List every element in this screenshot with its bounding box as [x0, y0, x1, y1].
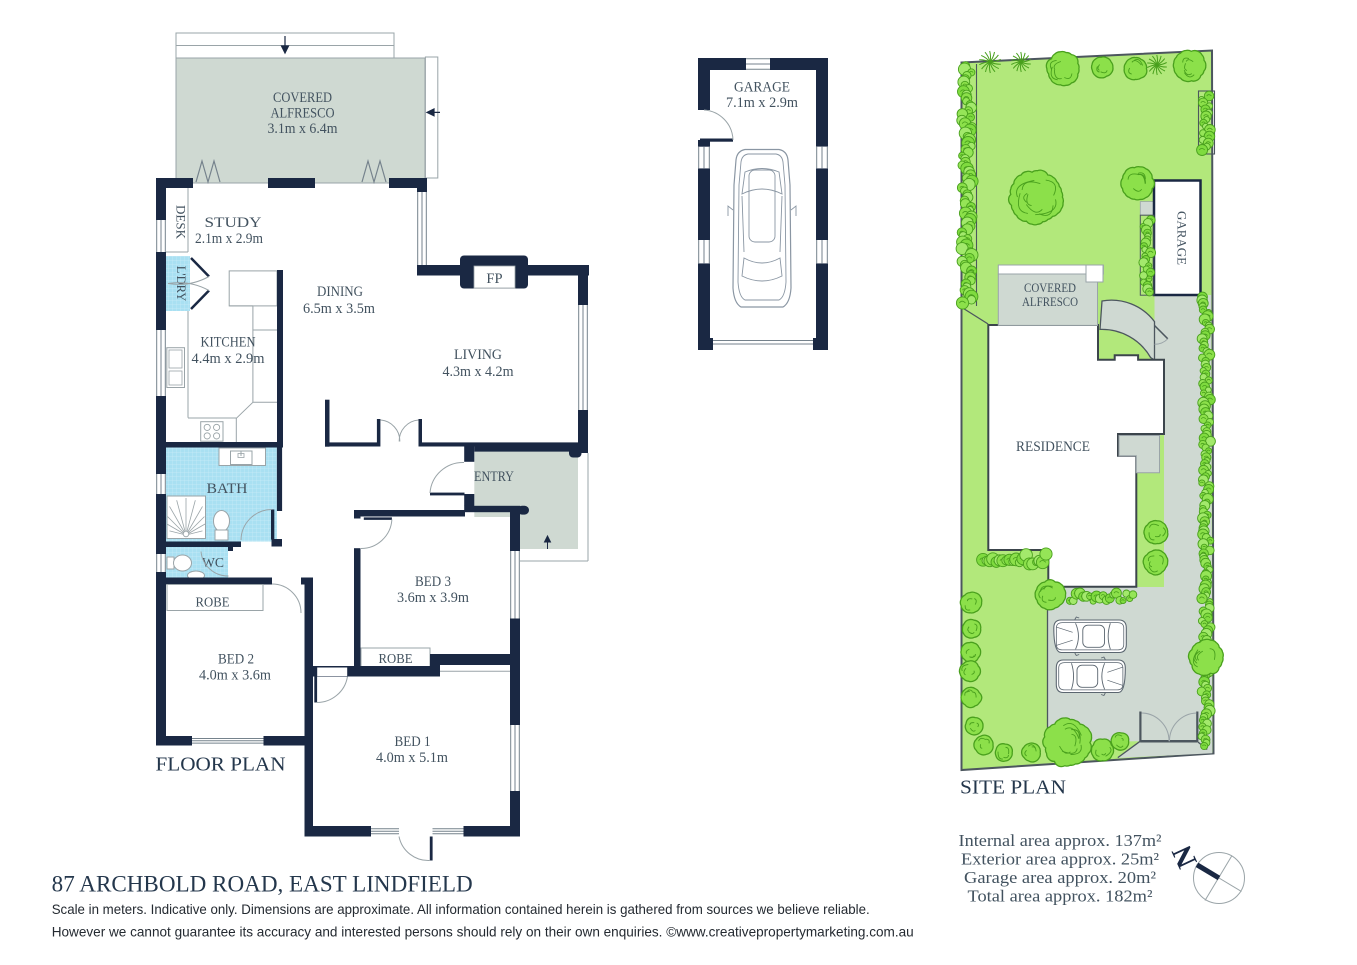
svg-text:4.0m x 3.6m: 4.0m x 3.6m	[199, 668, 271, 684]
svg-text:FLOOR PLAN: FLOOR PLAN	[156, 754, 286, 776]
svg-text:4.0m x 5.1m: 4.0m x 5.1m	[376, 750, 448, 766]
svg-text:ALFRESCO: ALFRESCO	[1022, 295, 1078, 309]
svg-text:DINING: DINING	[317, 284, 363, 300]
svg-text:However we cannot guarantee it: However we cannot guarantee its accuracy…	[52, 925, 914, 940]
svg-text:COVERED: COVERED	[273, 90, 332, 106]
svg-text:KITCHEN: KITCHEN	[201, 335, 256, 351]
svg-text:ALFRESCO: ALFRESCO	[271, 106, 335, 122]
svg-text:FP: FP	[486, 271, 502, 287]
svg-text:RESIDENCE: RESIDENCE	[1016, 439, 1090, 455]
svg-text:Internal area approx. 137m²: Internal area approx. 137m²	[959, 831, 1162, 850]
svg-text:BED 1: BED 1	[395, 734, 431, 750]
svg-text:ROBE: ROBE	[379, 651, 413, 666]
svg-text:6.5m x 3.5m: 6.5m x 3.5m	[303, 301, 375, 317]
svg-text:BED 3: BED 3	[415, 574, 451, 590]
svg-text:BATH: BATH	[207, 481, 248, 497]
svg-text:4.3m x 4.2m: 4.3m x 4.2m	[443, 364, 514, 380]
svg-text:4.4m x 2.9m: 4.4m x 2.9m	[192, 351, 265, 367]
svg-text:SITE PLAN: SITE PLAN	[960, 777, 1066, 799]
svg-text:DESK: DESK	[174, 205, 189, 240]
svg-text:2.1m x 2.9m: 2.1m x 2.9m	[195, 231, 263, 247]
svg-text:ROBE: ROBE	[196, 595, 230, 610]
svg-text:STUDY: STUDY	[205, 215, 262, 231]
svg-text:COVERED: COVERED	[1024, 281, 1076, 295]
svg-text:3.1m x 6.4m: 3.1m x 6.4m	[268, 121, 338, 137]
svg-text:GARAGE: GARAGE	[1175, 211, 1190, 265]
svg-text:GARAGE: GARAGE	[734, 80, 790, 96]
svg-text:Garage area approx. 20m²: Garage area approx. 20m²	[964, 868, 1156, 887]
svg-text:Exterior area approx. 25m²: Exterior area approx. 25m²	[961, 850, 1159, 869]
svg-text:7.1m x 2.9m: 7.1m x 2.9m	[726, 95, 798, 111]
svg-text:LIVING: LIVING	[454, 347, 502, 363]
svg-text:Total area approx. 182m²: Total area approx. 182m²	[968, 887, 1153, 906]
svg-text:3.6m x 3.9m: 3.6m x 3.9m	[397, 590, 469, 606]
svg-text:ENTRY: ENTRY	[474, 469, 514, 485]
svg-text:Scale in meters. Indicative on: Scale in meters. Indicative only. Dimens…	[52, 902, 870, 917]
svg-text:87 ARCHBOLD ROAD, EAST LINDFIE: 87 ARCHBOLD ROAD, EAST LINDFIELD	[52, 872, 473, 897]
svg-text:BED 2: BED 2	[218, 652, 254, 668]
